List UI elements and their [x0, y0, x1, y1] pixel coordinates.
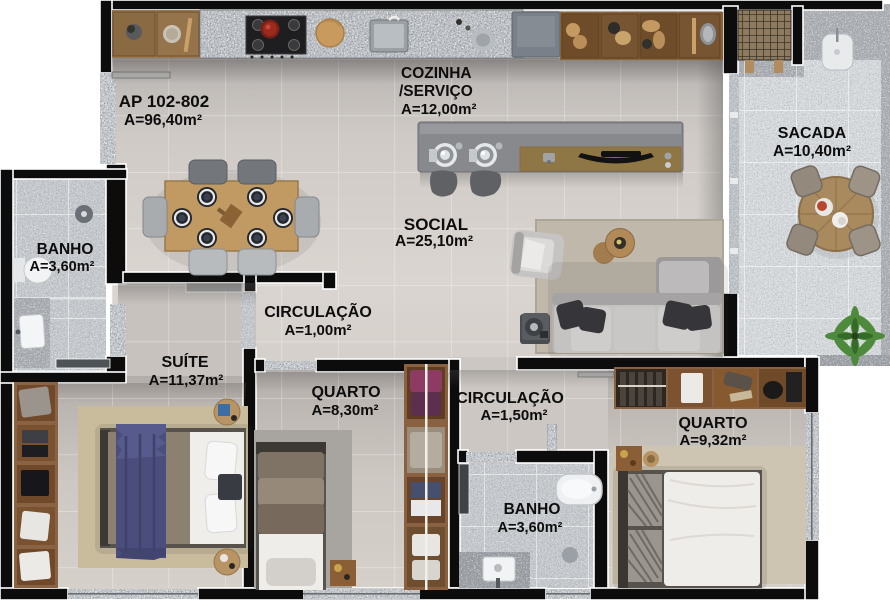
svg-text:CIRCULAÇÃO: CIRCULAÇÃO	[456, 387, 564, 407]
svg-text:QUARTO: QUARTO	[678, 415, 747, 432]
svg-text:SACADA: SACADA	[778, 125, 847, 142]
svg-text:SOCIAL: SOCIAL	[404, 215, 468, 234]
svg-text:COZINHA: COZINHA	[401, 65, 472, 82]
svg-text:A=1,50m²: A=1,50m²	[480, 407, 547, 424]
svg-text:A=10,40m²: A=10,40m²	[773, 143, 851, 160]
svg-text:QUARTO: QUARTO	[311, 384, 380, 401]
svg-text:BANHO: BANHO	[37, 241, 94, 258]
svg-text:/SERVIÇO: /SERVIÇO	[399, 83, 473, 100]
svg-text:A=11,37m²: A=11,37m²	[149, 372, 224, 389]
svg-text:A=9,32m²: A=9,32m²	[679, 432, 746, 449]
svg-text:A=3,60m²: A=3,60m²	[30, 259, 95, 275]
svg-text:A=3,60m²: A=3,60m²	[498, 520, 563, 536]
svg-text:A=8,30m²: A=8,30m²	[311, 402, 378, 419]
svg-text:AP 102-802: AP 102-802	[119, 92, 209, 111]
svg-text:SUÍTE: SUÍTE	[161, 352, 208, 371]
svg-text:CIRCULAÇÃO: CIRCULAÇÃO	[264, 301, 372, 321]
svg-text:A=96,40m²: A=96,40m²	[124, 112, 202, 129]
svg-text:A=1,00m²: A=1,00m²	[284, 322, 351, 339]
svg-text:BANHO: BANHO	[504, 501, 561, 518]
svg-text:A=12,00m²: A=12,00m²	[401, 101, 476, 118]
svg-text:A=25,10m²: A=25,10m²	[395, 233, 473, 250]
